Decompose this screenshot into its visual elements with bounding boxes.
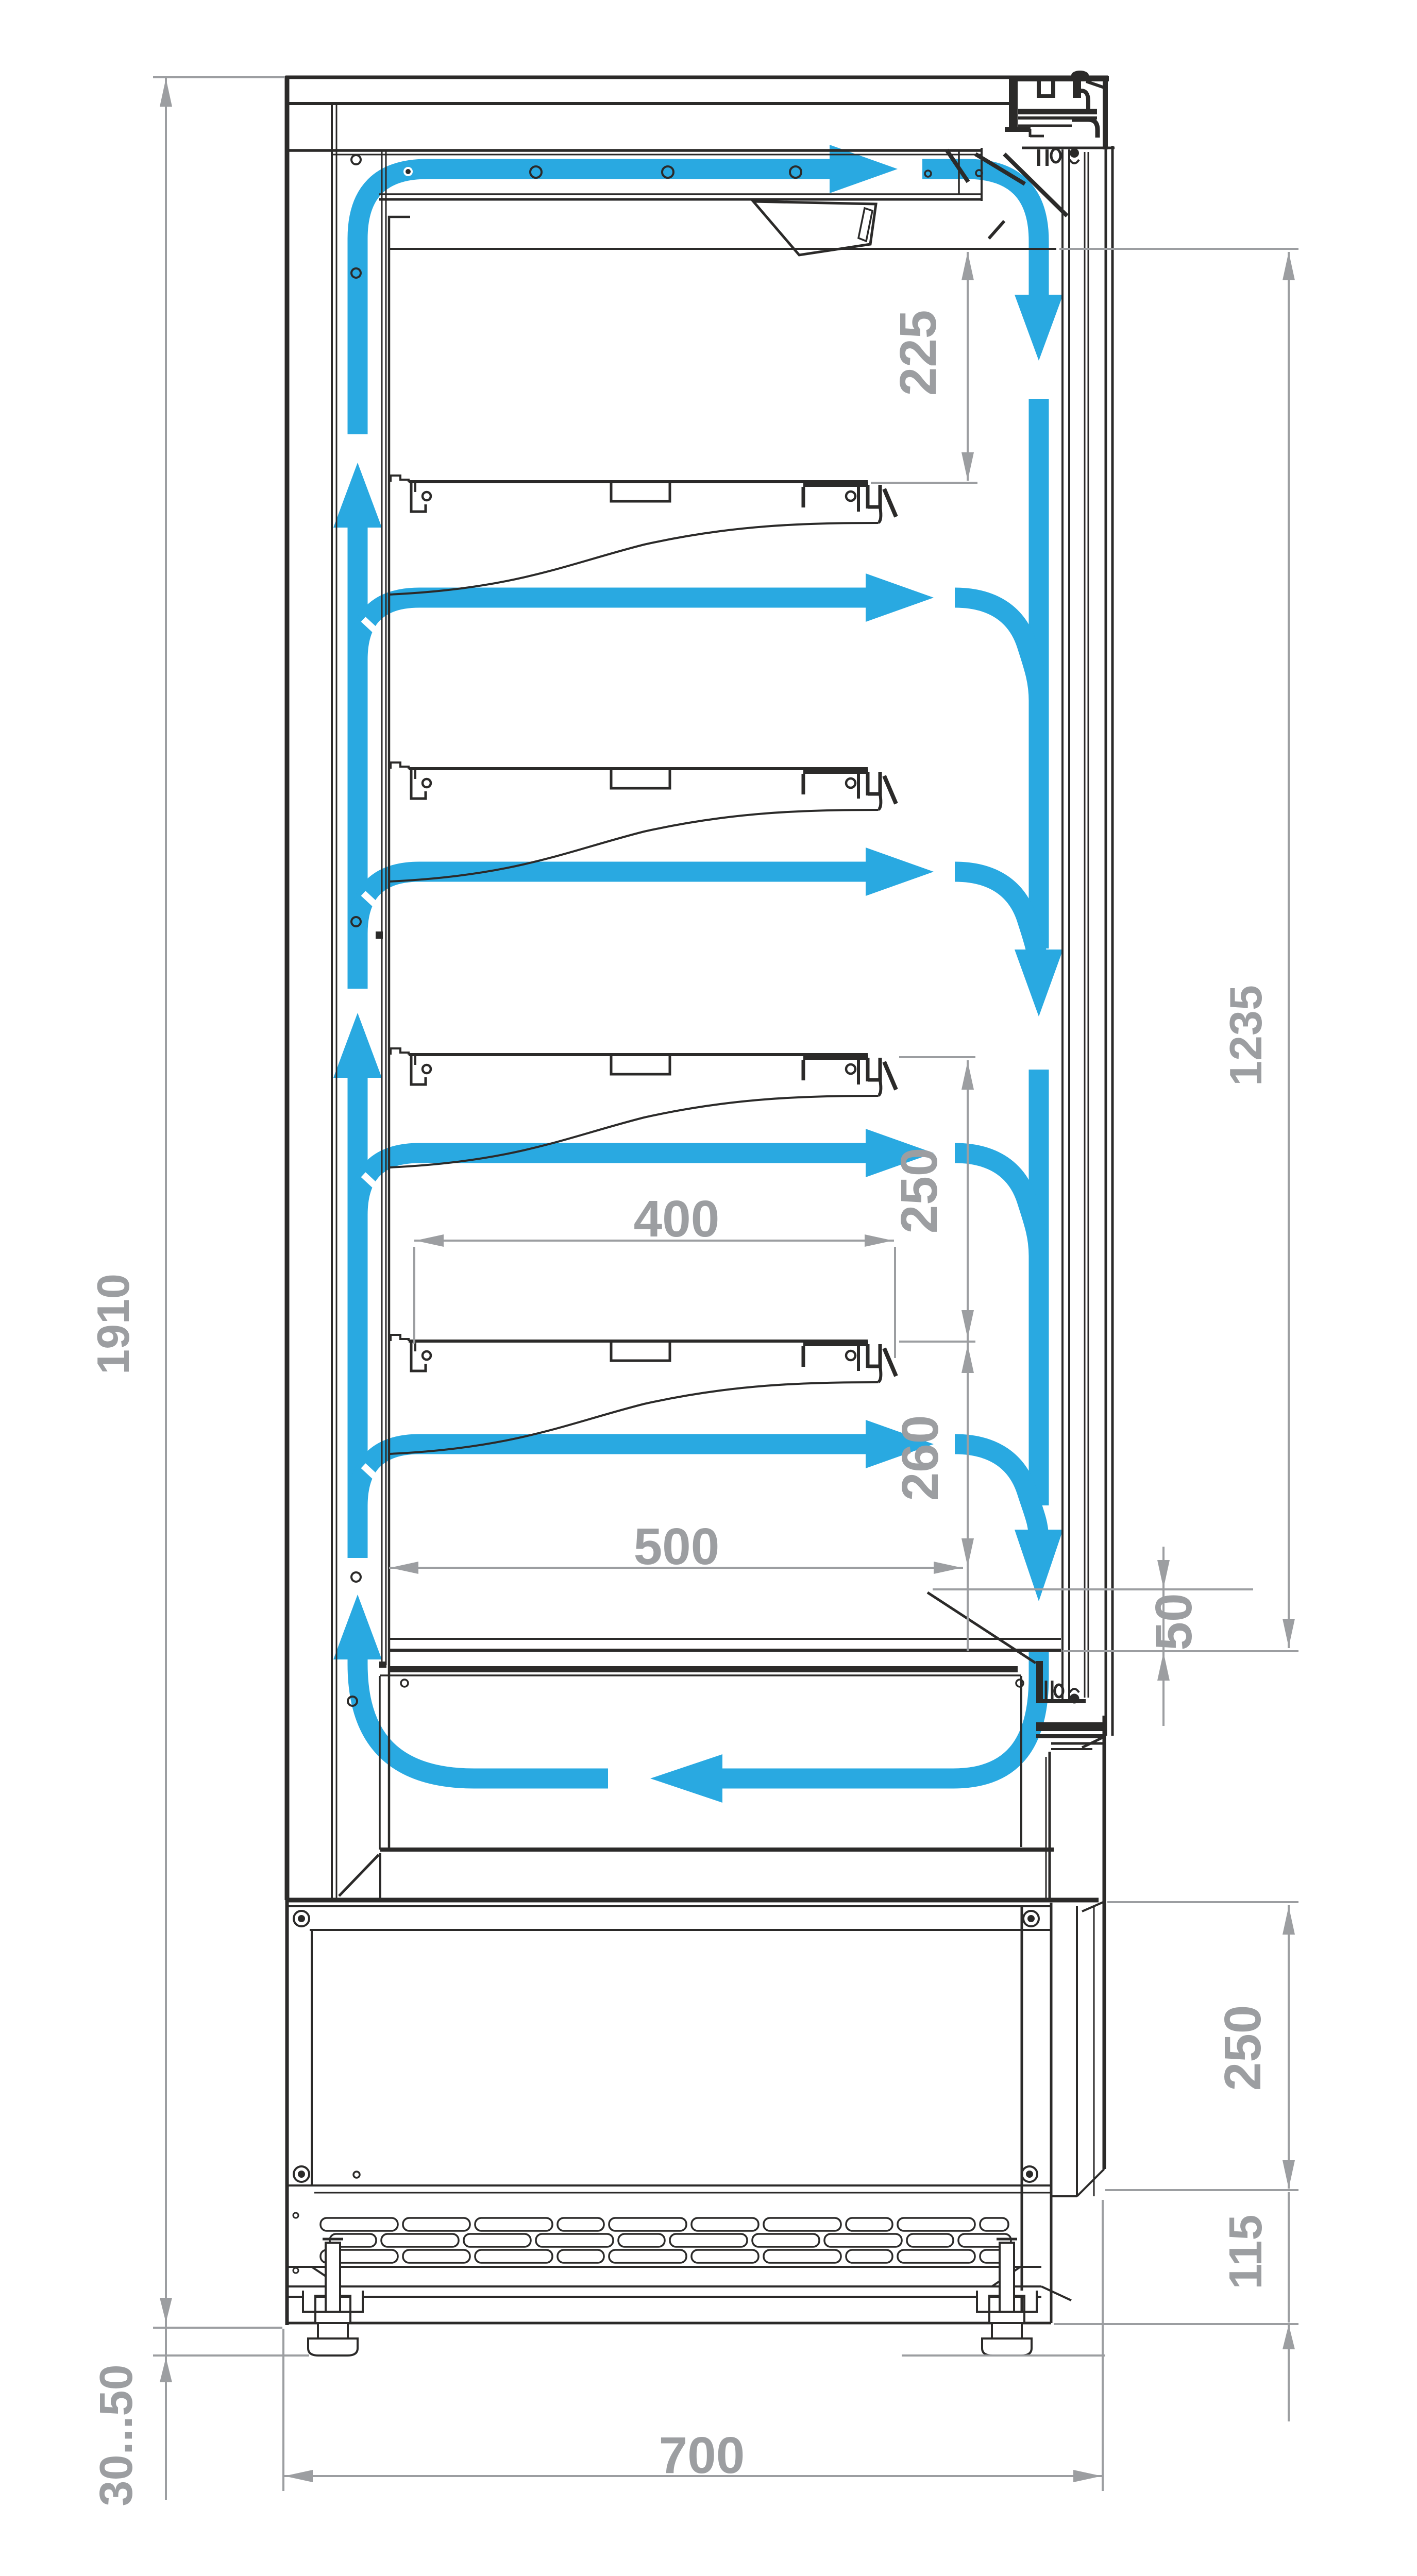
svg-text:250: 250: [890, 1148, 948, 1234]
svg-text:1910: 1910: [88, 1274, 139, 1375]
svg-text:500: 500: [634, 1518, 720, 1575]
svg-text:250: 250: [1214, 2005, 1272, 2091]
svg-text:1235: 1235: [1220, 985, 1271, 1086]
svg-text:400: 400: [634, 1190, 720, 1248]
svg-text:700: 700: [659, 2427, 745, 2484]
svg-text:50: 50: [1145, 1593, 1203, 1650]
svg-text:115: 115: [1220, 2214, 1272, 2289]
svg-text:30...50: 30...50: [91, 2364, 142, 2506]
svg-text:260: 260: [891, 1415, 949, 1501]
svg-text:225: 225: [889, 310, 947, 396]
